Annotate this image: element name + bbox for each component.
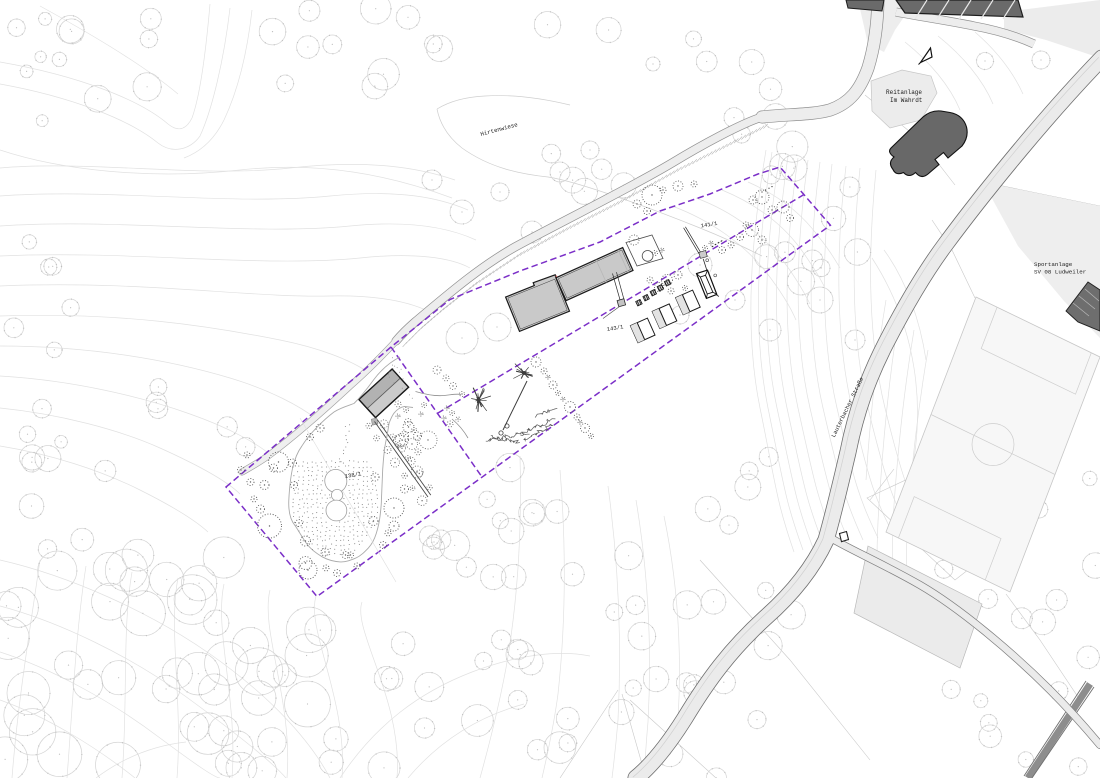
svg-text:Im Wahrdt: Im Wahrdt — [890, 97, 922, 104]
svg-text:Sportanlage: Sportanlage — [1034, 261, 1073, 268]
svg-text:Reitanlage: Reitanlage — [886, 89, 922, 96]
svg-text:SV 08 Ludweiler: SV 08 Ludweiler — [1034, 269, 1086, 276]
